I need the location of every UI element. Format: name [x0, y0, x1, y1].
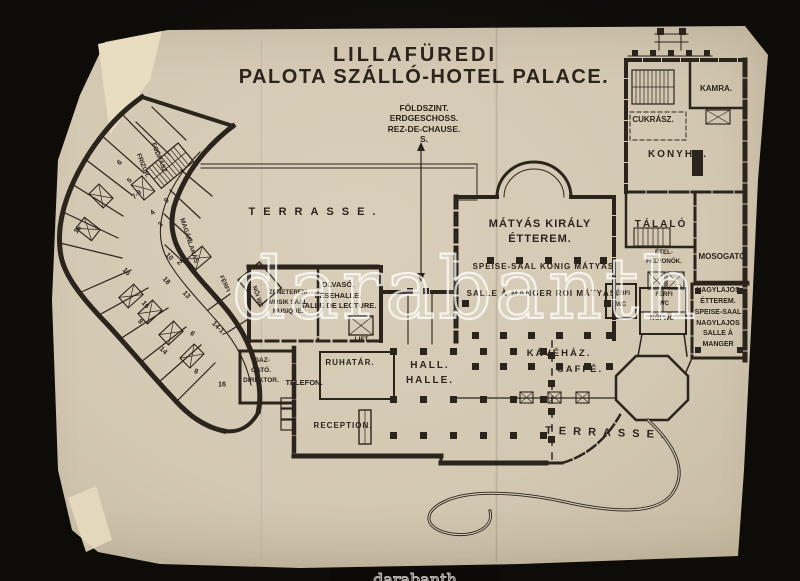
paper-sheet: [0, 0, 800, 581]
scanned-floor-plan: LILLAFÜREDI PALOTA SZÁLLÓ-HOTEL PALACE. …: [0, 0, 800, 581]
darabanth-watermark-bar: darabanth: [330, 569, 500, 581]
